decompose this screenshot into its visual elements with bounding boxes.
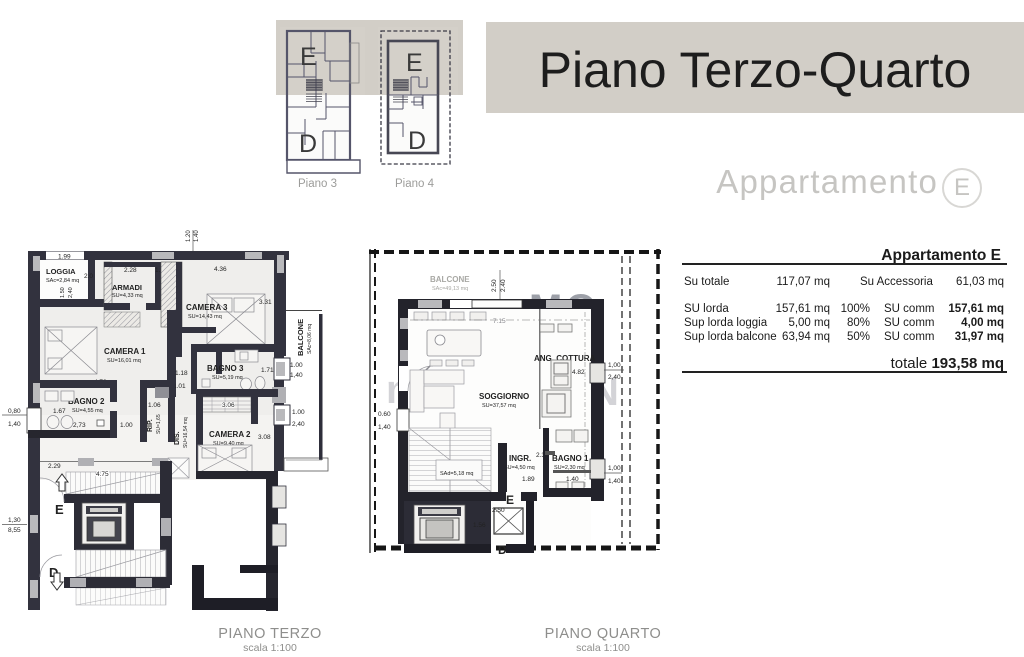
svg-text:BAGNO 1: BAGNO 1	[552, 454, 589, 463]
svg-text:2,40: 2,40	[68, 287, 74, 298]
svg-text:2,40: 2,40	[608, 374, 621, 381]
svg-text:4.36: 4.36	[214, 266, 227, 273]
svg-text:SU=14,43 mq: SU=14,43 mq	[188, 314, 222, 320]
svg-text:7.15: 7.15	[493, 318, 506, 325]
svg-text:2.50: 2.50	[492, 507, 505, 514]
svg-text:1,40: 1,40	[608, 478, 621, 485]
svg-text:CAMERA 3: CAMERA 3	[186, 303, 228, 312]
svg-text:SAc=8,06 mq: SAc=8,06 mq	[307, 324, 313, 354]
svg-text:LOGGIA: LOGGIA	[46, 267, 76, 276]
svg-text:1.40: 1.40	[194, 230, 200, 242]
svg-text:1.00: 1.00	[292, 409, 305, 416]
svg-text:E: E	[300, 43, 317, 71]
svg-text:3.31: 3.31	[259, 299, 272, 306]
svg-text:SAd=5,18 mq: SAd=5,18 mq	[440, 471, 473, 477]
svg-text:3.08: 3.08	[258, 434, 271, 441]
svg-text:D: D	[408, 127, 426, 155]
svg-text:1,40: 1,40	[290, 372, 303, 379]
svg-text:3.06: 3.06	[222, 402, 235, 409]
svg-text:BALCONE: BALCONE	[430, 275, 470, 284]
svg-text:INGR.: INGR.	[509, 454, 531, 463]
svg-text:4.82: 4.82	[572, 369, 585, 376]
svg-text:ARMADI: ARMADI	[112, 283, 142, 292]
svg-text:1,00: 1,00	[608, 465, 621, 472]
svg-text:D: D	[299, 130, 317, 158]
svg-text:E: E	[406, 49, 423, 77]
svg-text:1,40: 1,40	[8, 421, 21, 428]
svg-text:SU=4,33 mq: SU=4,33 mq	[112, 293, 143, 299]
svg-text:E: E	[506, 493, 514, 507]
svg-text:2.50: 2.50	[491, 279, 498, 292]
svg-text:2.28: 2.28	[124, 267, 137, 274]
svg-text:SU=1,65: SU=1,65	[156, 414, 162, 434]
svg-text:1.99: 1.99	[58, 254, 71, 261]
svg-text:BALCONE: BALCONE	[296, 319, 305, 356]
svg-text:2,40: 2,40	[292, 421, 305, 428]
svg-text:DIS.: DIS.	[174, 431, 181, 445]
svg-text:1.89: 1.89	[522, 476, 535, 483]
svg-text:1.20: 1.20	[186, 230, 192, 242]
svg-text:1,30: 1,30	[8, 517, 21, 524]
svg-text:SU=4,50 mq: SU=4,50 mq	[504, 465, 535, 471]
svg-text:1.67: 1.67	[53, 408, 66, 415]
svg-text:SOGGIORNO: SOGGIORNO	[479, 392, 529, 401]
svg-text:D: D	[498, 543, 507, 557]
svg-text:SU=5,19 mq: SU=5,19 mq	[212, 375, 243, 381]
svg-text:SU=16,01 mq: SU=16,01 mq	[107, 358, 141, 364]
svg-text:2,73: 2,73	[73, 422, 86, 429]
svg-text:SU=37,57 mq: SU=37,57 mq	[482, 403, 516, 409]
svg-text:CAMERA 2: CAMERA 2	[209, 430, 251, 439]
svg-text:1.06: 1.06	[148, 402, 161, 409]
svg-text:4.75: 4.75	[96, 471, 109, 478]
svg-text:1.71: 1.71	[261, 367, 274, 374]
svg-text:1.00: 1.00	[120, 422, 133, 429]
svg-text:8,55: 8,55	[8, 527, 21, 534]
svg-text:1.50: 1.50	[60, 287, 66, 298]
svg-text:1,00: 1,00	[608, 362, 621, 369]
svg-text:1.18: 1.18	[175, 370, 188, 377]
svg-text:2.40: 2.40	[500, 279, 507, 292]
svg-text:SU=4,55 mq: SU=4,55 mq	[72, 408, 103, 414]
svg-text:1.00: 1.00	[290, 362, 303, 369]
svg-text:1,40: 1,40	[378, 424, 391, 431]
svg-text:RIP.: RIP.	[147, 419, 154, 432]
svg-text:CAMERA 1: CAMERA 1	[104, 347, 146, 356]
svg-text:2.0: 2.0	[84, 273, 93, 280]
svg-text:SU=16,54 mq: SU=16,54 mq	[183, 417, 189, 448]
svg-text:SAc=49,13 mq: SAc=49,13 mq	[432, 286, 468, 292]
svg-text:E: E	[55, 502, 64, 517]
svg-text:0,80: 0,80	[8, 408, 21, 415]
svg-text:BAGNO 3: BAGNO 3	[207, 364, 244, 373]
svg-text:SAc=2,84 mq: SAc=2,84 mq	[46, 278, 79, 284]
svg-text:2.29: 2.29	[48, 463, 61, 470]
svg-text:1.56: 1.56	[473, 522, 486, 529]
svg-text:0.60: 0.60	[378, 411, 391, 418]
